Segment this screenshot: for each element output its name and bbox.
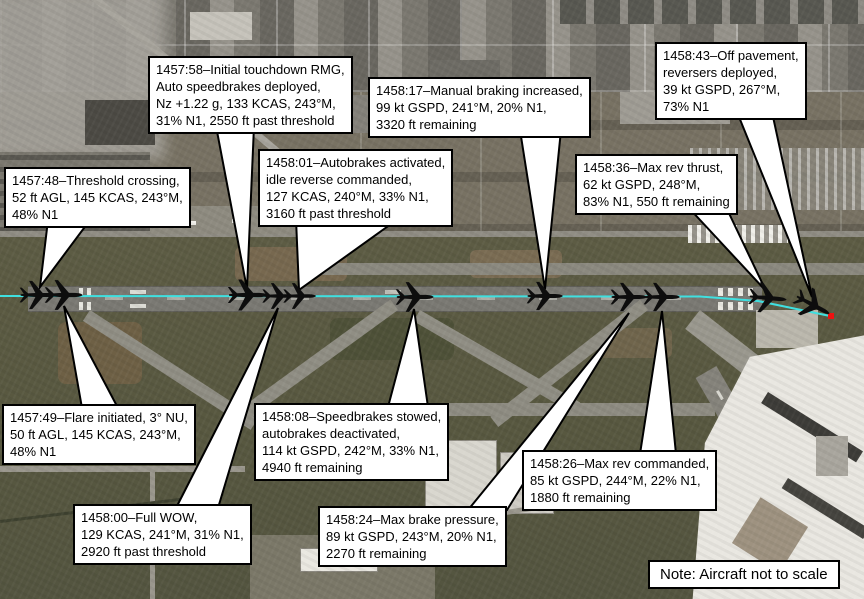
callout-autobrakes-activated: 1458:01–Autobrakes activated, idle rever… — [258, 149, 453, 227]
callout-tail — [40, 220, 90, 287]
callout-tail — [64, 306, 118, 408]
callout-tail — [216, 126, 254, 289]
aircraft-group — [20, 279, 837, 326]
callout-off-pavement: 1458:43–Off pavement, reversers deployed… — [655, 42, 807, 120]
aircraft-icon-max-rev-thrust — [748, 282, 788, 315]
aircraft-icon-off-pavement — [789, 283, 836, 327]
callout-tail — [640, 311, 676, 454]
aircraft-icon-flare — [45, 280, 83, 310]
aircraft-icon-max-rev-commanded — [644, 283, 680, 311]
callout-max-rev-thrust: 1458:36–Max rev thrust, 62 kt GSPD, 248°… — [575, 154, 738, 215]
callout-max-rev-commanded: 1458:26–Max rev commanded, 85 kt GSPD, 2… — [522, 450, 717, 511]
callout-max-brake-pressure: 1458:24–Max brake pressure, 89 kt GSPD, … — [318, 506, 507, 567]
callout-tail — [520, 130, 561, 289]
callout-manual-braking: 1458:17–Manual braking increased, 99 kt … — [368, 77, 591, 138]
callout-full-wow: 1458:00–Full WOW, 129 KCAS, 241°M, 31% N… — [73, 504, 252, 565]
callout-tail — [296, 219, 398, 290]
annotated-aerial-figure: 1457:48–Threshold crossing, 52 ft AGL, 1… — [0, 0, 864, 599]
scale-note: Note: Aircraft not to scale — [648, 560, 840, 589]
callout-tail — [388, 309, 428, 407]
aircraft-icon-max-brake — [611, 283, 647, 311]
callout-threshold-crossing: 1457:48–Threshold crossing, 52 ft AGL, 1… — [4, 167, 191, 228]
aircraft-icon-speedbrakes-stowed — [396, 282, 434, 312]
callout-initial-touchdown: 1457:58–Initial touchdown RMG, Auto spee… — [148, 56, 353, 134]
callout-tail — [688, 207, 766, 291]
callout-speedbrakes-stowed: 1458:08–Speedbrakes stowed, autobrakes d… — [254, 403, 449, 481]
callout-flare-initiated: 1457:49–Flare initiated, 3° NU, 50 ft AG… — [2, 404, 196, 465]
